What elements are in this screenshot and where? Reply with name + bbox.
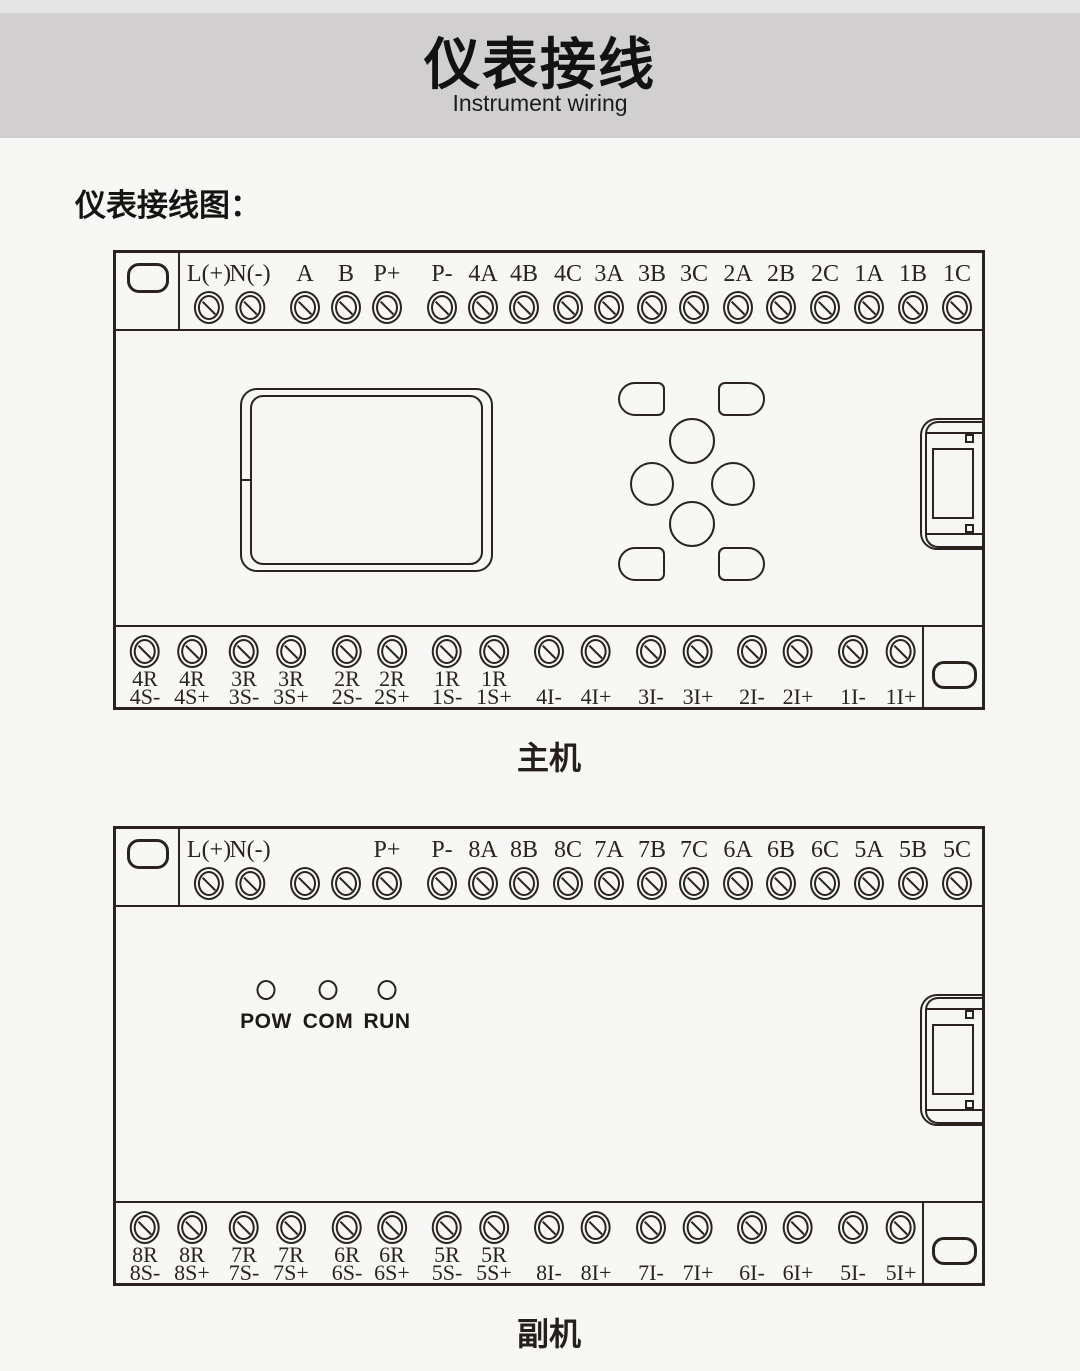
terminal-screw-icon xyxy=(783,635,813,668)
page-subtitle: Instrument wiring xyxy=(0,91,1080,115)
terminal-label: A xyxy=(296,259,313,289)
terminal: 5B xyxy=(898,835,928,900)
terminal-screw-icon xyxy=(683,635,713,668)
corner-cell xyxy=(116,253,180,329)
unit-caption: 主机 xyxy=(113,733,985,779)
terminal: 6R6S+ xyxy=(374,1211,410,1282)
terminal-label-line: 6I+ xyxy=(783,1264,814,1282)
terminal: 1A xyxy=(854,259,884,324)
terminal-label: 3C xyxy=(680,259,708,289)
terminal-label: N(-) xyxy=(229,835,270,865)
terminal: 1R1S+ xyxy=(476,635,512,706)
terminal-label: 4R4S+ xyxy=(174,669,210,706)
terminal: P+ xyxy=(372,259,402,324)
terminal: 3C xyxy=(679,259,709,324)
header-banner: 仪表接线 Instrument wiring xyxy=(0,13,1080,138)
terminal-label-line: 6S- xyxy=(332,1264,363,1282)
terminal-screw-icon xyxy=(332,635,362,668)
terminal-label: 1R1S- xyxy=(432,669,463,706)
terminal-screw-icon xyxy=(432,1211,462,1244)
keypad-button-top-right xyxy=(718,382,765,416)
section-heading: 仪表接线图： xyxy=(75,180,261,225)
connector-line xyxy=(927,1109,982,1111)
terminal-label: 7R7S- xyxy=(229,1245,260,1282)
terminal-screw-icon xyxy=(886,635,916,668)
terminal-label: 7I+ xyxy=(683,1245,714,1282)
terminal-screw-icon xyxy=(783,1211,813,1244)
terminal-label: 1R1S+ xyxy=(476,669,512,706)
terminal-screw-icon xyxy=(581,1211,611,1244)
terminal-label: P+ xyxy=(374,835,401,865)
terminal-label-line: 3I+ xyxy=(683,688,714,706)
main-unit: L(+)N(-)ABP+P-4A4B4C3A3B3C2A2B2C1A1B1C xyxy=(113,250,985,779)
terminal-screw-icon xyxy=(854,867,884,900)
led-indicator-com xyxy=(319,980,338,1000)
terminal: N(-) xyxy=(229,259,270,324)
display-screen xyxy=(240,388,493,572)
terminal-screw-icon xyxy=(898,291,928,324)
terminal-label: 3I+ xyxy=(683,669,714,706)
sub-unit-panel: POWCOMRUN xyxy=(116,907,982,1201)
terminal-label-line: 2S+ xyxy=(374,688,410,706)
terminal-label: 1C xyxy=(943,259,971,289)
terminal: 4B xyxy=(509,259,539,324)
terminal-screw-icon xyxy=(509,867,539,900)
terminal-label: 8C xyxy=(554,835,582,865)
terminal-label: P+ xyxy=(374,259,401,289)
terminal-label: 5C xyxy=(943,835,971,865)
terminal-screw-icon xyxy=(636,1211,666,1244)
terminal-label: 2I+ xyxy=(783,669,814,706)
terminal: 2C xyxy=(810,259,840,324)
side-connector xyxy=(920,994,982,1126)
terminal-label: 8B xyxy=(510,835,538,865)
terminal: 4R4S+ xyxy=(174,635,210,706)
terminal-label: 1I+ xyxy=(886,669,917,706)
terminal-label: 3A xyxy=(594,259,623,289)
terminal: 5A xyxy=(854,835,884,900)
terminal-label: N(-) xyxy=(229,259,270,289)
terminal: 2I- xyxy=(737,635,767,706)
terminal-label: 6R6S- xyxy=(332,1245,363,1282)
sub-top-terminal-strip: L(+)N(-)P+P-8A8B8C7A7B7C6A6B6C5A5B5C xyxy=(116,829,982,907)
terminal-screw-icon xyxy=(810,291,840,324)
terminal-label-line: 7I+ xyxy=(683,1264,714,1282)
terminal-screw-icon xyxy=(838,635,868,668)
terminal-screw-icon xyxy=(290,291,320,324)
terminal: P- xyxy=(427,259,457,324)
mounting-slot-icon xyxy=(127,839,169,869)
terminal-screw-icon xyxy=(810,867,840,900)
terminal-label-line: 4I- xyxy=(536,688,562,706)
terminal-label: 8I+ xyxy=(581,1245,612,1282)
mounting-slot-icon xyxy=(932,1237,977,1265)
terminal-screw-icon xyxy=(942,867,972,900)
terminal-screw-icon xyxy=(766,291,796,324)
terminal: 6I- xyxy=(737,1211,767,1282)
terminal: 8B xyxy=(509,835,539,900)
terminal-screw-icon xyxy=(372,291,402,324)
keypad-button-up xyxy=(669,418,715,464)
terminal: 6A xyxy=(723,835,753,900)
terminal-screw-icon xyxy=(372,867,402,900)
terminal: 6B xyxy=(766,835,796,900)
terminal-screw-icon xyxy=(534,635,564,668)
terminal-label: 7I- xyxy=(638,1245,664,1282)
terminal-label-line: 1S- xyxy=(432,688,463,706)
terminal-screw-icon xyxy=(683,1211,713,1244)
terminal: 3A xyxy=(594,259,624,324)
terminal-label: 3R3S- xyxy=(229,669,260,706)
terminal-label: 2I- xyxy=(739,669,765,706)
terminal-label-line: 5S+ xyxy=(476,1264,512,1282)
main-top-terminal-strip: L(+)N(-)ABP+P-4A4B4C3A3B3C2A2B2C1A1B1C xyxy=(116,253,982,331)
led-label: POW xyxy=(240,1010,292,1034)
terminal: P- xyxy=(427,835,457,900)
terminal-label: 6B xyxy=(767,835,795,865)
terminal-label-line: 5S- xyxy=(432,1264,463,1282)
terminal: 5R5S- xyxy=(432,1211,463,1282)
terminal-screw-icon xyxy=(723,867,753,900)
terminal-label-line: 2S- xyxy=(332,688,363,706)
terminal: 8C xyxy=(553,835,583,900)
terminal-label-line: 7S- xyxy=(229,1264,260,1282)
terminal-label: 1A xyxy=(854,259,883,289)
terminal-label: 4I+ xyxy=(581,669,612,706)
terminal-screw-icon xyxy=(581,635,611,668)
terminal-label-line: 2I- xyxy=(739,688,765,706)
terminal-screw-icon xyxy=(194,291,224,324)
sub-bottom-terminal-strip: 8R8S-8R8S+7R7S-7R7S+6R6S-6R6S+5R5S-5R5S+… xyxy=(116,1201,982,1283)
terminal: 5I- xyxy=(838,1211,868,1282)
terminal-label: 7A xyxy=(594,835,623,865)
keypad-button-bottom-right xyxy=(718,547,765,581)
terminal: A xyxy=(290,259,320,324)
terminal-label: 8A xyxy=(468,835,497,865)
terminal-screw-icon xyxy=(377,1211,407,1244)
terminal: 3I+ xyxy=(683,635,714,706)
connector-tab-top xyxy=(965,434,974,443)
terminal: 6C xyxy=(810,835,840,900)
terminal-screw-icon xyxy=(479,1211,509,1244)
terminal: 8R8S+ xyxy=(174,1211,210,1282)
terminal-label: 5I- xyxy=(840,1245,866,1282)
terminal-screw-icon xyxy=(594,291,624,324)
terminal: N(-) xyxy=(229,835,270,900)
terminal: 7R7S- xyxy=(229,1211,260,1282)
terminal-label: 8R8S- xyxy=(130,1245,161,1282)
terminal-label: 4B xyxy=(510,259,538,289)
main-unit-device: L(+)N(-)ABP+P-4A4B4C3A3B3C2A2B2C1A1B1C xyxy=(113,250,985,710)
terminal: 5R5S+ xyxy=(476,1211,512,1282)
terminal-screw-icon xyxy=(427,867,457,900)
terminal: 8A xyxy=(468,835,498,900)
terminal-label: 2R2S- xyxy=(332,669,363,706)
terminal-label: 4A xyxy=(468,259,497,289)
terminal-screw-icon xyxy=(290,867,320,900)
terminal xyxy=(331,835,361,900)
terminal-screw-icon xyxy=(637,867,667,900)
terminal-label: 3I- xyxy=(638,669,664,706)
terminal-label: 5A xyxy=(854,835,883,865)
terminal-label: 4I- xyxy=(536,669,562,706)
top-terminal-row: L(+)N(-)ABP+P-4A4B4C3A3B3C2A2B2C1A1B1C xyxy=(180,253,982,329)
terminal-screw-icon xyxy=(235,291,265,324)
connector-tab-top xyxy=(965,1010,974,1019)
terminal: 7I+ xyxy=(683,1211,714,1282)
terminal: 2B xyxy=(766,259,796,324)
corner-cell xyxy=(922,1203,982,1283)
terminal-screw-icon xyxy=(679,291,709,324)
terminal-label: 4R4S- xyxy=(130,669,161,706)
sub-unit: L(+)N(-)P+P-8A8B8C7A7B7C6A6B6C5A5B5C POW… xyxy=(113,826,985,1355)
terminal-label: 5B xyxy=(899,835,927,865)
terminal-label: L(+) xyxy=(187,259,231,289)
terminal-label: L(+) xyxy=(187,835,231,865)
terminal: 3I- xyxy=(636,635,666,706)
keypad-button-top-left xyxy=(618,382,665,416)
terminal-screw-icon xyxy=(177,635,207,668)
terminal-label-line: 3S+ xyxy=(273,688,309,706)
corner-cell xyxy=(922,627,982,707)
connector-line xyxy=(927,533,982,535)
terminal: 2R2S- xyxy=(332,635,363,706)
terminal: 7I- xyxy=(636,1211,666,1282)
terminal-screw-icon xyxy=(427,291,457,324)
connector-socket xyxy=(932,448,974,519)
terminal-screw-icon xyxy=(130,635,160,668)
terminal-label: P- xyxy=(431,259,452,289)
terminal-label: 6I- xyxy=(739,1245,765,1282)
terminal-screw-icon xyxy=(194,867,224,900)
terminal-label: 1I- xyxy=(840,669,866,706)
terminal-label: 6A xyxy=(723,835,752,865)
terminal-label: B xyxy=(338,259,354,289)
terminal-label-line: 7S+ xyxy=(273,1264,309,1282)
terminal-screw-icon xyxy=(432,635,462,668)
instrument-wiring-page: 仪表接线 Instrument wiring 仪表接线图： L(+)N(-)AB… xyxy=(0,0,1080,1371)
terminal: 3R3S- xyxy=(229,635,260,706)
keypad-button-bottom-left xyxy=(618,547,665,581)
terminal-screw-icon xyxy=(332,1211,362,1244)
terminal-screw-icon xyxy=(723,291,753,324)
terminal-label: 6C xyxy=(811,835,839,865)
terminal-screw-icon xyxy=(838,1211,868,1244)
terminal-label: 2A xyxy=(723,259,752,289)
terminal: 3R3S+ xyxy=(273,635,309,706)
terminal: 2I+ xyxy=(783,635,814,706)
terminal: P+ xyxy=(372,835,402,900)
terminal: 2A xyxy=(723,259,753,324)
terminal-label-line: 4S- xyxy=(130,688,161,706)
terminal: 1I+ xyxy=(886,635,917,706)
terminal-screw-icon xyxy=(177,1211,207,1244)
terminal: 7C xyxy=(679,835,709,900)
terminal: 4I+ xyxy=(581,635,612,706)
terminal-label: 5R5S- xyxy=(432,1245,463,1282)
terminal-label: 2B xyxy=(767,259,795,289)
terminal-label-line: 8S+ xyxy=(174,1264,210,1282)
terminal-label-line: 1S+ xyxy=(476,688,512,706)
terminal-label: 6I+ xyxy=(783,1245,814,1282)
page-title: 仪表接线 xyxy=(0,13,1080,95)
sub-unit-device: L(+)N(-)P+P-8A8B8C7A7B7C6A6B6C5A5B5C POW… xyxy=(113,826,985,1286)
terminal: 4R4S- xyxy=(130,635,161,706)
terminal-label-line: 2I+ xyxy=(783,688,814,706)
terminal: 2R2S+ xyxy=(374,635,410,706)
terminal-label: 7B xyxy=(638,835,666,865)
terminal-screw-icon xyxy=(276,635,306,668)
terminal-screw-icon xyxy=(479,635,509,668)
terminal: 4I- xyxy=(534,635,564,706)
terminal-screw-icon xyxy=(509,291,539,324)
terminal: L(+) xyxy=(187,259,231,324)
mounting-slot-icon xyxy=(932,661,977,689)
terminal: 7B xyxy=(637,835,667,900)
terminal-screw-icon xyxy=(737,1211,767,1244)
corner-cell xyxy=(116,829,180,905)
terminal-screw-icon xyxy=(331,867,361,900)
terminal-label: 2C xyxy=(811,259,839,289)
terminal: 1I- xyxy=(838,635,868,706)
terminal-label-line: 6I- xyxy=(739,1264,765,1282)
terminal: 6R6S- xyxy=(332,1211,363,1282)
terminal-label-line: 8I+ xyxy=(581,1264,612,1282)
terminal-label: 3B xyxy=(638,259,666,289)
keypad-button-left xyxy=(630,462,674,506)
unit-caption: 副机 xyxy=(113,1309,985,1355)
terminal-screw-icon xyxy=(276,1211,306,1244)
terminal-screw-icon xyxy=(130,1211,160,1244)
terminal-screw-icon xyxy=(594,867,624,900)
terminal-label: 3R3S+ xyxy=(273,669,309,706)
side-connector xyxy=(920,418,982,550)
terminal-label-line: 4I+ xyxy=(581,688,612,706)
terminal-label-line: 3S- xyxy=(229,688,260,706)
terminal-label: 4C xyxy=(554,259,582,289)
top-mini-strip xyxy=(0,0,1080,13)
terminal: 7R7S+ xyxy=(273,1211,309,1282)
terminal-screw-icon xyxy=(637,291,667,324)
keypad-button-right xyxy=(711,462,755,506)
terminal-screw-icon xyxy=(553,867,583,900)
terminal-screw-icon xyxy=(854,291,884,324)
bottom-terminal-row: 4R4S-4R4S+3R3S-3R3S+2R2S-2R2S+1R1S-1R1S+… xyxy=(116,627,922,707)
display-screen-inner xyxy=(250,395,483,565)
terminal-label-line: 7I- xyxy=(638,1264,664,1282)
main-bottom-terminal-strip: 4R4S-4R4S+3R3S-3R3S+2R2S-2R2S+1R1S-1R1S+… xyxy=(116,625,982,707)
terminal-label: 5R5S+ xyxy=(476,1245,512,1282)
terminal: 7A xyxy=(594,835,624,900)
terminal-label: 8I- xyxy=(536,1245,562,1282)
terminal-screw-icon xyxy=(942,291,972,324)
terminal-label: P- xyxy=(431,835,452,865)
display-bezel-tick xyxy=(242,479,251,481)
terminal: 1R1S- xyxy=(432,635,463,706)
terminal-screw-icon xyxy=(898,867,928,900)
terminal-screw-icon xyxy=(553,291,583,324)
terminal-screw-icon xyxy=(468,291,498,324)
terminal: 5C xyxy=(942,835,972,900)
terminal-label-line: 4S+ xyxy=(174,688,210,706)
led-label: COM xyxy=(303,1010,354,1034)
terminal: 1B xyxy=(898,259,928,324)
terminal: 6I+ xyxy=(783,1211,814,1282)
led-indicator-run xyxy=(378,980,397,1000)
terminal-label-line: 3I- xyxy=(638,688,664,706)
terminal: 4C xyxy=(553,259,583,324)
terminal-label: 7R7S+ xyxy=(273,1245,309,1282)
terminal: 8I+ xyxy=(581,1211,612,1282)
terminal-label: 7C xyxy=(680,835,708,865)
terminal-label-line: 8I- xyxy=(536,1264,562,1282)
terminal: 4A xyxy=(468,259,498,324)
terminal-screw-icon xyxy=(679,867,709,900)
terminal-screw-icon xyxy=(331,291,361,324)
led-label: RUN xyxy=(364,1010,411,1034)
terminal: 5I+ xyxy=(886,1211,917,1282)
terminal: 3B xyxy=(637,259,667,324)
terminal-screw-icon xyxy=(235,867,265,900)
terminal-screw-icon xyxy=(468,867,498,900)
terminal-screw-icon xyxy=(886,1211,916,1244)
terminal-label: 2R2S+ xyxy=(374,669,410,706)
terminal-screw-icon xyxy=(737,635,767,668)
terminal-label-line: 5I- xyxy=(840,1264,866,1282)
terminal xyxy=(290,835,320,900)
terminal: 8I- xyxy=(534,1211,564,1282)
terminal-label: 6R6S+ xyxy=(374,1245,410,1282)
terminal-label: 5I+ xyxy=(886,1245,917,1282)
terminal: 8R8S- xyxy=(130,1211,161,1282)
terminal: 1C xyxy=(942,259,972,324)
terminal-screw-icon xyxy=(534,1211,564,1244)
connector-tab-bottom xyxy=(965,1100,974,1109)
top-terminal-row: L(+)N(-)P+P-8A8B8C7A7B7C6A6B6C5A5B5C xyxy=(180,829,982,905)
bottom-terminal-row: 8R8S-8R8S+7R7S-7R7S+6R6S-6R6S+5R5S-5R5S+… xyxy=(116,1203,922,1283)
terminal-screw-icon xyxy=(377,635,407,668)
main-unit-panel xyxy=(116,331,982,625)
led-indicator-pow xyxy=(257,980,276,1000)
terminal-screw-icon xyxy=(636,635,666,668)
terminal-screw-icon xyxy=(229,635,259,668)
connector-tab-bottom xyxy=(965,524,974,533)
terminal: B xyxy=(331,259,361,324)
mounting-slot-icon xyxy=(127,263,169,293)
terminal-label-line: 1I+ xyxy=(886,688,917,706)
keypad-button-down xyxy=(669,501,715,547)
connector-socket xyxy=(932,1024,974,1095)
terminal-label: 1B xyxy=(899,259,927,289)
terminal-label-line: 8S- xyxy=(130,1264,161,1282)
terminal-label-line: 1I- xyxy=(840,688,866,706)
terminal-label-line: 6S+ xyxy=(374,1264,410,1282)
terminal-screw-icon xyxy=(229,1211,259,1244)
terminal: L(+) xyxy=(187,835,231,900)
terminal-label-line: 5I+ xyxy=(886,1264,917,1282)
terminal-label: 8R8S+ xyxy=(174,1245,210,1282)
terminal-screw-icon xyxy=(766,867,796,900)
